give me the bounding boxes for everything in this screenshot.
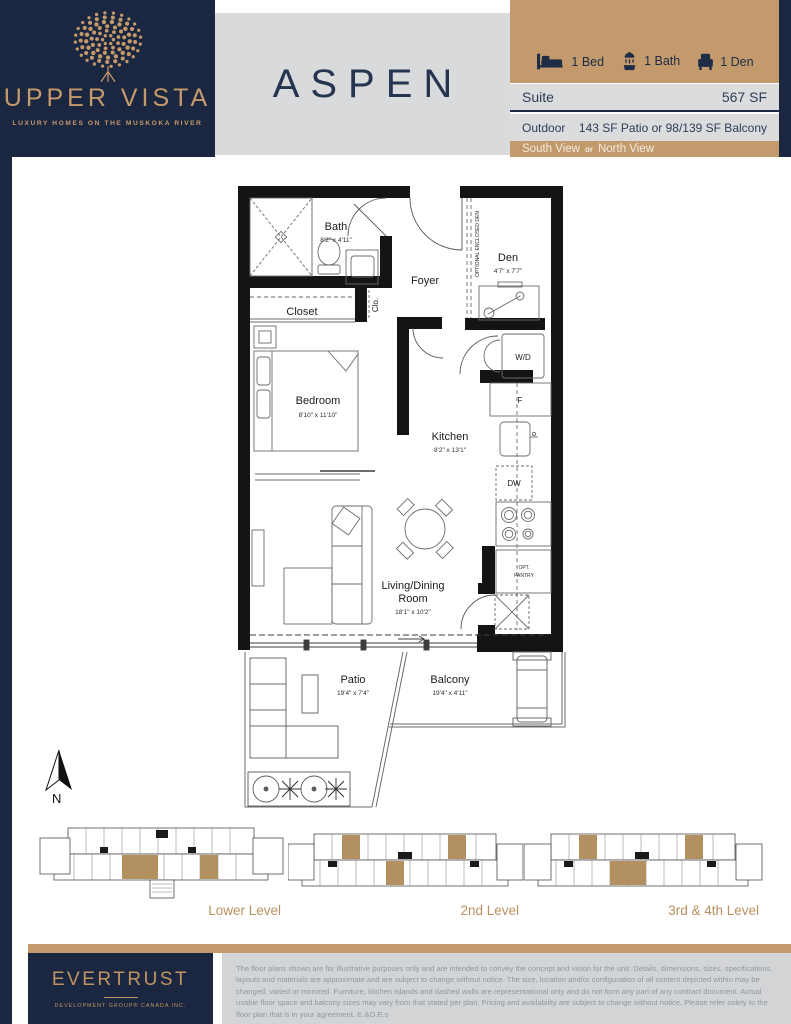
unit-info-panel: 1 Bed 1 Bath — [510, 0, 779, 157]
feature-bath-label: 1 Bath — [644, 54, 680, 68]
kitchen-dims: 8'2" x 13'1" — [434, 447, 467, 454]
footer-accent-bar — [28, 944, 791, 953]
patio-dims: 19'4" x 7'4" — [337, 690, 370, 697]
view-row: South View or North View — [510, 141, 779, 157]
north-arrow: N — [36, 746, 82, 806]
outdoor-label: Outdoor — [522, 121, 565, 135]
developer-panel: EVERTRUST DEVELOPMENT GROUP® CANADA INC. — [28, 953, 213, 1024]
outdoor-value: 143 SF Patio or 98/139 SF Balcony — [579, 121, 767, 135]
pantry-label-1: OPT. — [518, 565, 529, 571]
suite-row: Suite 567 SF — [510, 84, 779, 112]
living-dims: 18'1" x 10'2" — [395, 609, 431, 616]
bedroom-dims: 8'10" x 11'10" — [299, 412, 338, 419]
plan-name-panel: ASPEN — [215, 13, 510, 155]
brand-name: UPPER VISTA — [0, 84, 215, 113]
closet-label: Closet — [286, 306, 317, 318]
balcony-dims: 19'4" x 4'11" — [432, 690, 468, 697]
bath-dims: 8'2" x 4'11" — [320, 237, 352, 244]
north-label: N — [52, 791, 61, 806]
kitchen-label: Kitchen — [432, 431, 469, 443]
feature-bed-label: 1 Bed — [571, 55, 604, 69]
disclaimer-text: The floor plans shown are for illustrati… — [222, 953, 791, 1024]
bath-fixtures — [250, 198, 378, 284]
brand-panel: UPPER VISTA LUXURY HOMES ON THE MUSKOKA … — [0, 0, 215, 157]
bed-icon — [535, 52, 565, 71]
feature-bed: 1 Bed — [535, 52, 604, 71]
optional-den-note: OPTIONAL ENCLOSED DEN — [475, 211, 481, 277]
feature-den: 1 Den — [697, 52, 753, 71]
wd-label: W/D — [515, 353, 531, 362]
foyer-label: Foyer — [411, 275, 439, 287]
suite-value: 567 SF — [722, 89, 767, 105]
developer-rule — [104, 997, 138, 998]
den-dims: 4'7" x 7'7" — [494, 268, 523, 275]
clo-label: Clo. — [371, 298, 380, 312]
keyplan-lower-level: Lower Level — [38, 822, 285, 918]
feature-bath: 1 Bath — [621, 51, 680, 71]
developer-logo: EVERTRUST — [28, 969, 213, 991]
den-icon — [697, 52, 714, 71]
living-label-2: Room — [398, 593, 427, 605]
keyplan-lower-label: Lower Level — [208, 903, 281, 918]
keyplan-3rd-4th-label: 3rd & 4th Level — [668, 903, 759, 918]
brand-tree-logo — [48, 10, 168, 88]
suite-label: Suite — [522, 89, 554, 105]
keyplan-2nd-label: 2nd Level — [460, 903, 519, 918]
right-border-strip — [779, 0, 791, 157]
view-second: North View — [598, 143, 654, 155]
developer-subtitle: DEVELOPMENT GROUP® CANADA INC. — [28, 1003, 213, 1009]
outdoor-row: Outdoor 143 SF Patio or 98/139 SF Balcon… — [510, 114, 779, 141]
pantry-label-2: PANTRY — [514, 573, 534, 579]
features-row: 1 Bed 1 Bath — [510, 0, 779, 83]
patio-label: Patio — [340, 674, 365, 686]
fridge-label: F — [518, 396, 523, 405]
planter — [248, 772, 350, 806]
keyplan-2nd-level: 2nd Level — [288, 830, 523, 918]
floorplan-drawing: Bath 8'2" x 4'11" Foyer Den 4'7" x 7'7" … — [228, 178, 573, 823]
living-label-1: Living/Dining — [382, 580, 445, 592]
feature-den-label: 1 Den — [720, 55, 753, 69]
balcony-label: Balcony — [430, 674, 470, 686]
living-furniture — [252, 499, 453, 624]
bath-icon — [621, 51, 638, 71]
keyplan-3rd-4th-level: 3rd & 4th Level — [523, 830, 763, 918]
view-first: South View — [522, 143, 580, 155]
floorplan-sheet: UPPER VISTA LUXURY HOMES ON THE MUSKOKA … — [0, 0, 791, 1024]
dw-label: DW — [507, 479, 521, 488]
brand-tagline: LUXURY HOMES ON THE MUSKOKA RIVER — [0, 120, 215, 127]
bedroom-label: Bedroom — [296, 395, 341, 407]
plan-name: ASPEN — [262, 62, 464, 107]
bath-label: Bath — [325, 221, 348, 233]
outdoor-areas — [245, 652, 565, 807]
view-conjunction: or — [585, 145, 593, 154]
den-label: Den — [498, 252, 518, 264]
